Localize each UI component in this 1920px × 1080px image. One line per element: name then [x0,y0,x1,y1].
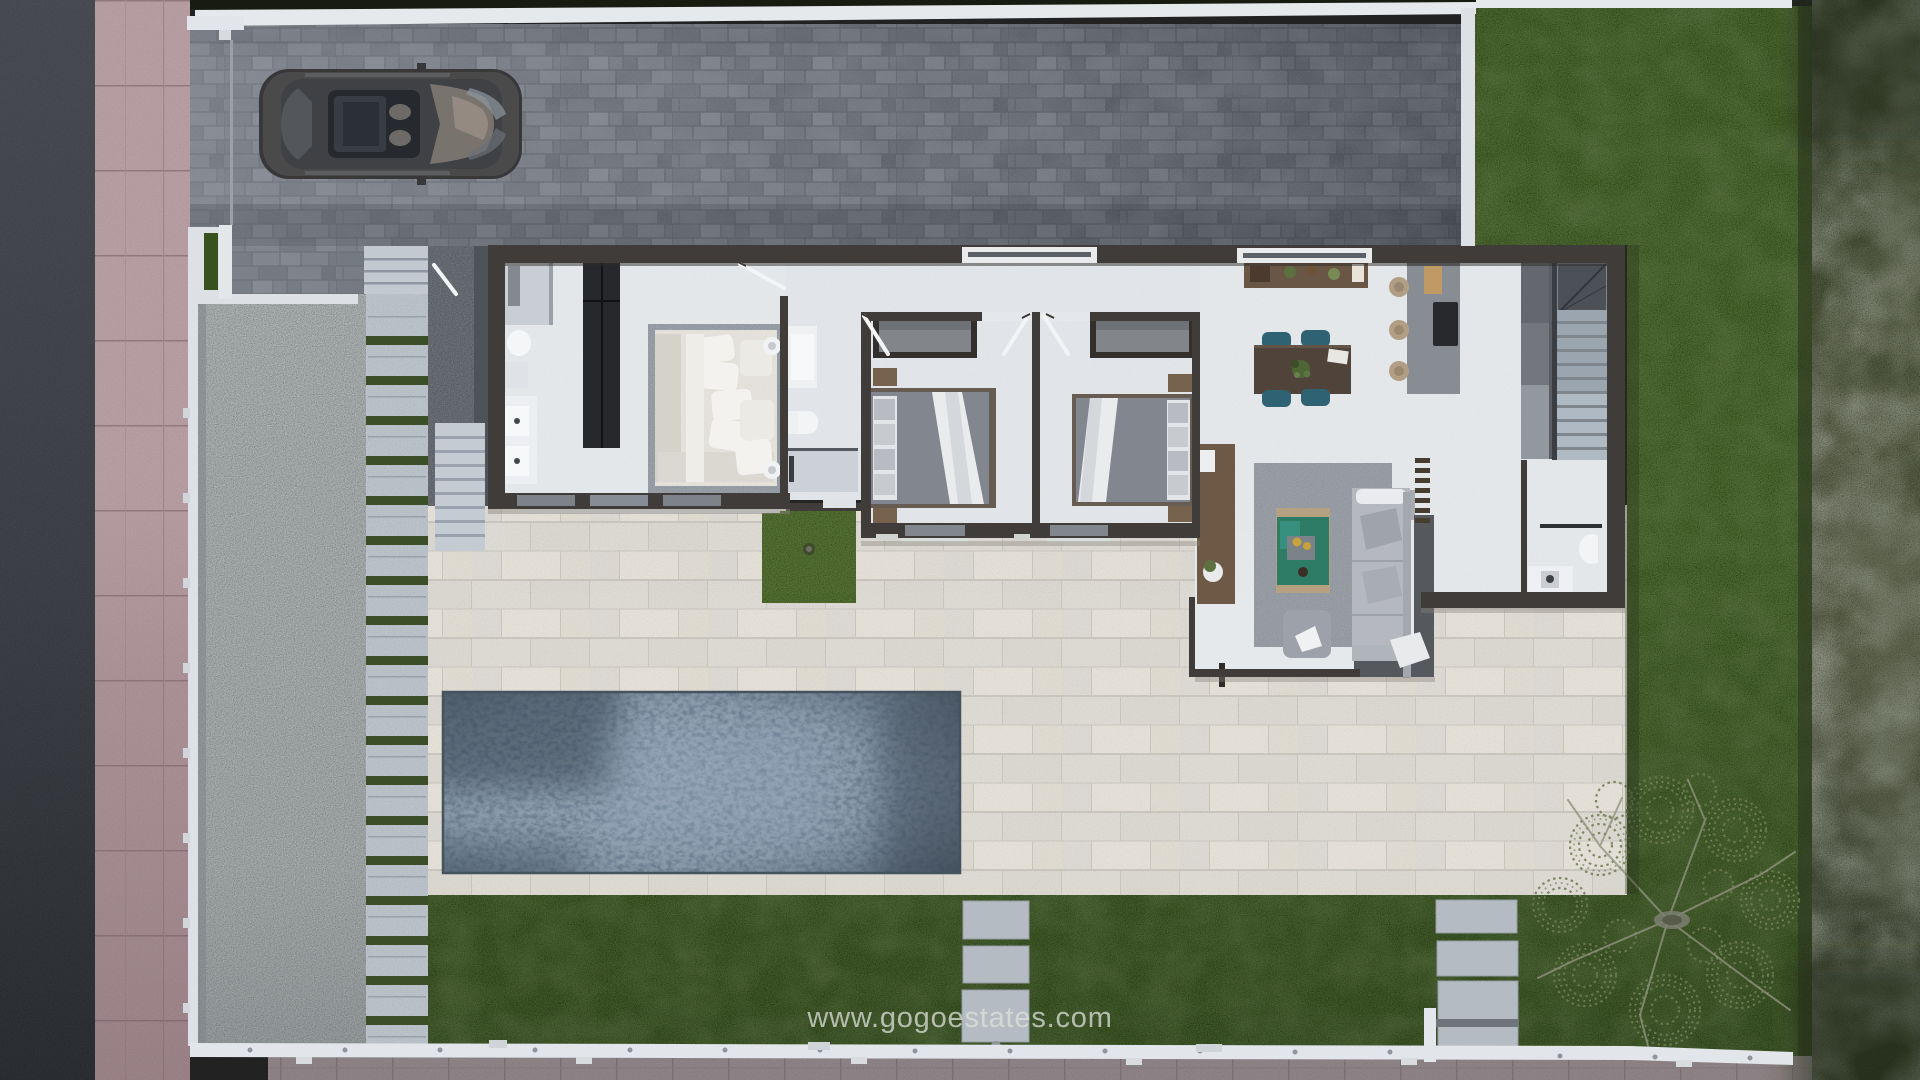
svg-text:www.gogoestates.com: www.gogoestates.com [806,1002,1112,1034]
